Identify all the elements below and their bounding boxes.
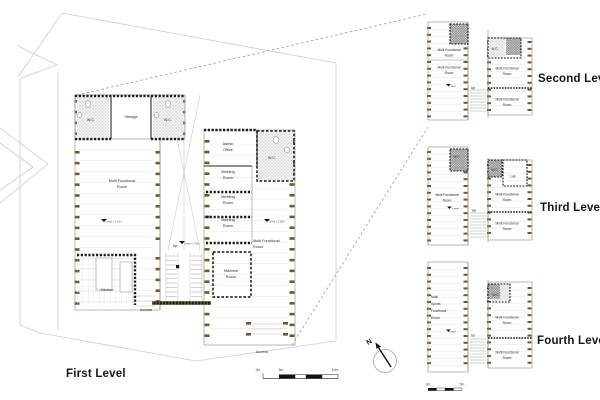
third-level-plan: W.C. W.C. Lab Multi Functional Room Mult…	[428, 147, 600, 245]
room-label-wc: W.C.	[491, 47, 498, 51]
level-marker-label: Level	[453, 207, 460, 211]
room-label-storage: Storage	[124, 115, 137, 119]
third-level-title: Third Level	[540, 202, 600, 214]
svg-text:Sports: Sports	[431, 302, 441, 306]
svg-text:Room: Room	[223, 176, 233, 180]
up-label: Up	[472, 209, 477, 213]
svg-text:Room: Room	[445, 71, 454, 75]
svg-text:Room: Room	[503, 321, 512, 325]
access-label-west: Access	[140, 308, 152, 312]
second-level-title: Second Level	[538, 73, 600, 85]
first-level-title: First Level	[66, 368, 126, 380]
room-label-wc-left: W.C.	[87, 118, 95, 122]
svg-text:Room: Room	[503, 103, 512, 107]
scale-label: 5m	[279, 368, 284, 372]
room-label-meeting-1: Meeting	[221, 170, 235, 174]
room-label: Multi Functional	[435, 193, 458, 197]
floor-grid-lines	[80, 30, 526, 365]
scale-label: 0m	[426, 383, 431, 387]
svg-text:Room: Room	[445, 54, 454, 58]
room-label-multi-sports: Multi	[431, 295, 438, 299]
toilet-fixture-icon	[273, 136, 278, 143]
north-arrow-icon: N	[366, 338, 397, 372]
svg-text:Office: Office	[223, 148, 233, 152]
up-label: Up	[471, 86, 476, 90]
level-marker-label: Level	[450, 84, 457, 88]
up-label: Up	[471, 334, 476, 338]
first-level-plan: W.C. Storage W.C. Multi Functional Room …	[66, 95, 295, 380]
svg-text:Room: Room	[503, 227, 512, 231]
room-label-meeting-3: Meeting	[221, 218, 235, 222]
svg-text:Room: Room	[253, 245, 263, 249]
toilet-fixture-icon	[165, 100, 170, 107]
room-label-wc-mid: W.C.	[491, 168, 498, 172]
scale-bar-small: 0m 5m	[426, 383, 465, 391]
fourth-level-plan: Multi Sports Functional Room W.C. Multi …	[428, 262, 600, 372]
room-label: Multi Functional	[437, 66, 460, 70]
callout-line-bottom	[292, 127, 428, 345]
room-label: Multi Functional	[495, 67, 518, 71]
north-label: N	[366, 338, 374, 347]
floor-plan-sheet: W.C. Storage W.C. Multi Functional Room …	[0, 0, 600, 400]
room-label: Multi Functional	[437, 48, 460, 52]
room-label-wc-mid: W.C.	[164, 118, 172, 122]
sink-fixture-icon	[77, 113, 82, 118]
sink-fixture-icon	[154, 113, 159, 118]
scale-label: 10m	[332, 368, 339, 372]
access-label-south: Access	[256, 350, 268, 354]
room-label-admin-office: Admin	[223, 142, 234, 146]
wc-left-area	[77, 97, 109, 137]
plan-drawing: W.C. Storage W.C. Multi Functional Room …	[0, 0, 600, 400]
room-label: Multi Functional	[495, 316, 518, 320]
room-label-wc-right: W.C.	[268, 156, 276, 160]
room-label: Multi Functional	[495, 351, 518, 355]
toilet-fixture-icon	[85, 100, 90, 107]
room-label-lab: Lab	[510, 175, 516, 179]
svg-text:Room: Room	[226, 275, 236, 279]
room-label-machine-room: Machine	[224, 269, 238, 273]
up-label: Up	[173, 244, 178, 248]
svg-text:Room: Room	[443, 199, 452, 203]
room-label-mfr-right: Multi Functional	[253, 239, 280, 243]
scale-label: 0m	[256, 368, 261, 372]
svg-text:Room: Room	[503, 198, 512, 202]
svg-text:Room: Room	[223, 224, 233, 228]
level-marker-label: Level +1.20m	[184, 242, 200, 246]
room-label-multi-functional: Multi Functional	[109, 179, 136, 183]
svg-text:Room: Room	[503, 72, 512, 76]
scale-label: 5m	[460, 383, 465, 387]
stair-treads	[166, 90, 486, 363]
site-boundary-lines	[0, 13, 336, 361]
sink-fixture-icon	[284, 147, 289, 152]
level-marker-label: Level +1.20m	[106, 220, 122, 224]
room-label-wc-top: W.C.	[453, 155, 460, 159]
level-marker-label: Level	[450, 330, 457, 334]
svg-text:Room: Room	[503, 356, 512, 360]
fourth-level-title: Fourth Level	[537, 335, 600, 347]
svg-text:Room: Room	[223, 201, 233, 205]
room-label: Multi Functional	[495, 193, 518, 197]
svg-text:Room: Room	[431, 316, 440, 320]
level-marker-label: Level +1.20m	[269, 220, 285, 224]
room-label: Multi Functional	[495, 222, 518, 226]
svg-text:Room: Room	[117, 185, 127, 189]
room-label-kitchen: Kitchen	[101, 288, 114, 292]
room-label-wc: W.C.	[492, 293, 499, 297]
scale-bar-main: 0m 5m 10m	[256, 368, 339, 379]
callout-line-top	[77, 14, 427, 95]
room-label-meeting-2: Meeting	[221, 195, 235, 199]
room-label: Multi Functional	[495, 98, 518, 102]
svg-text:Functional: Functional	[431, 309, 446, 313]
